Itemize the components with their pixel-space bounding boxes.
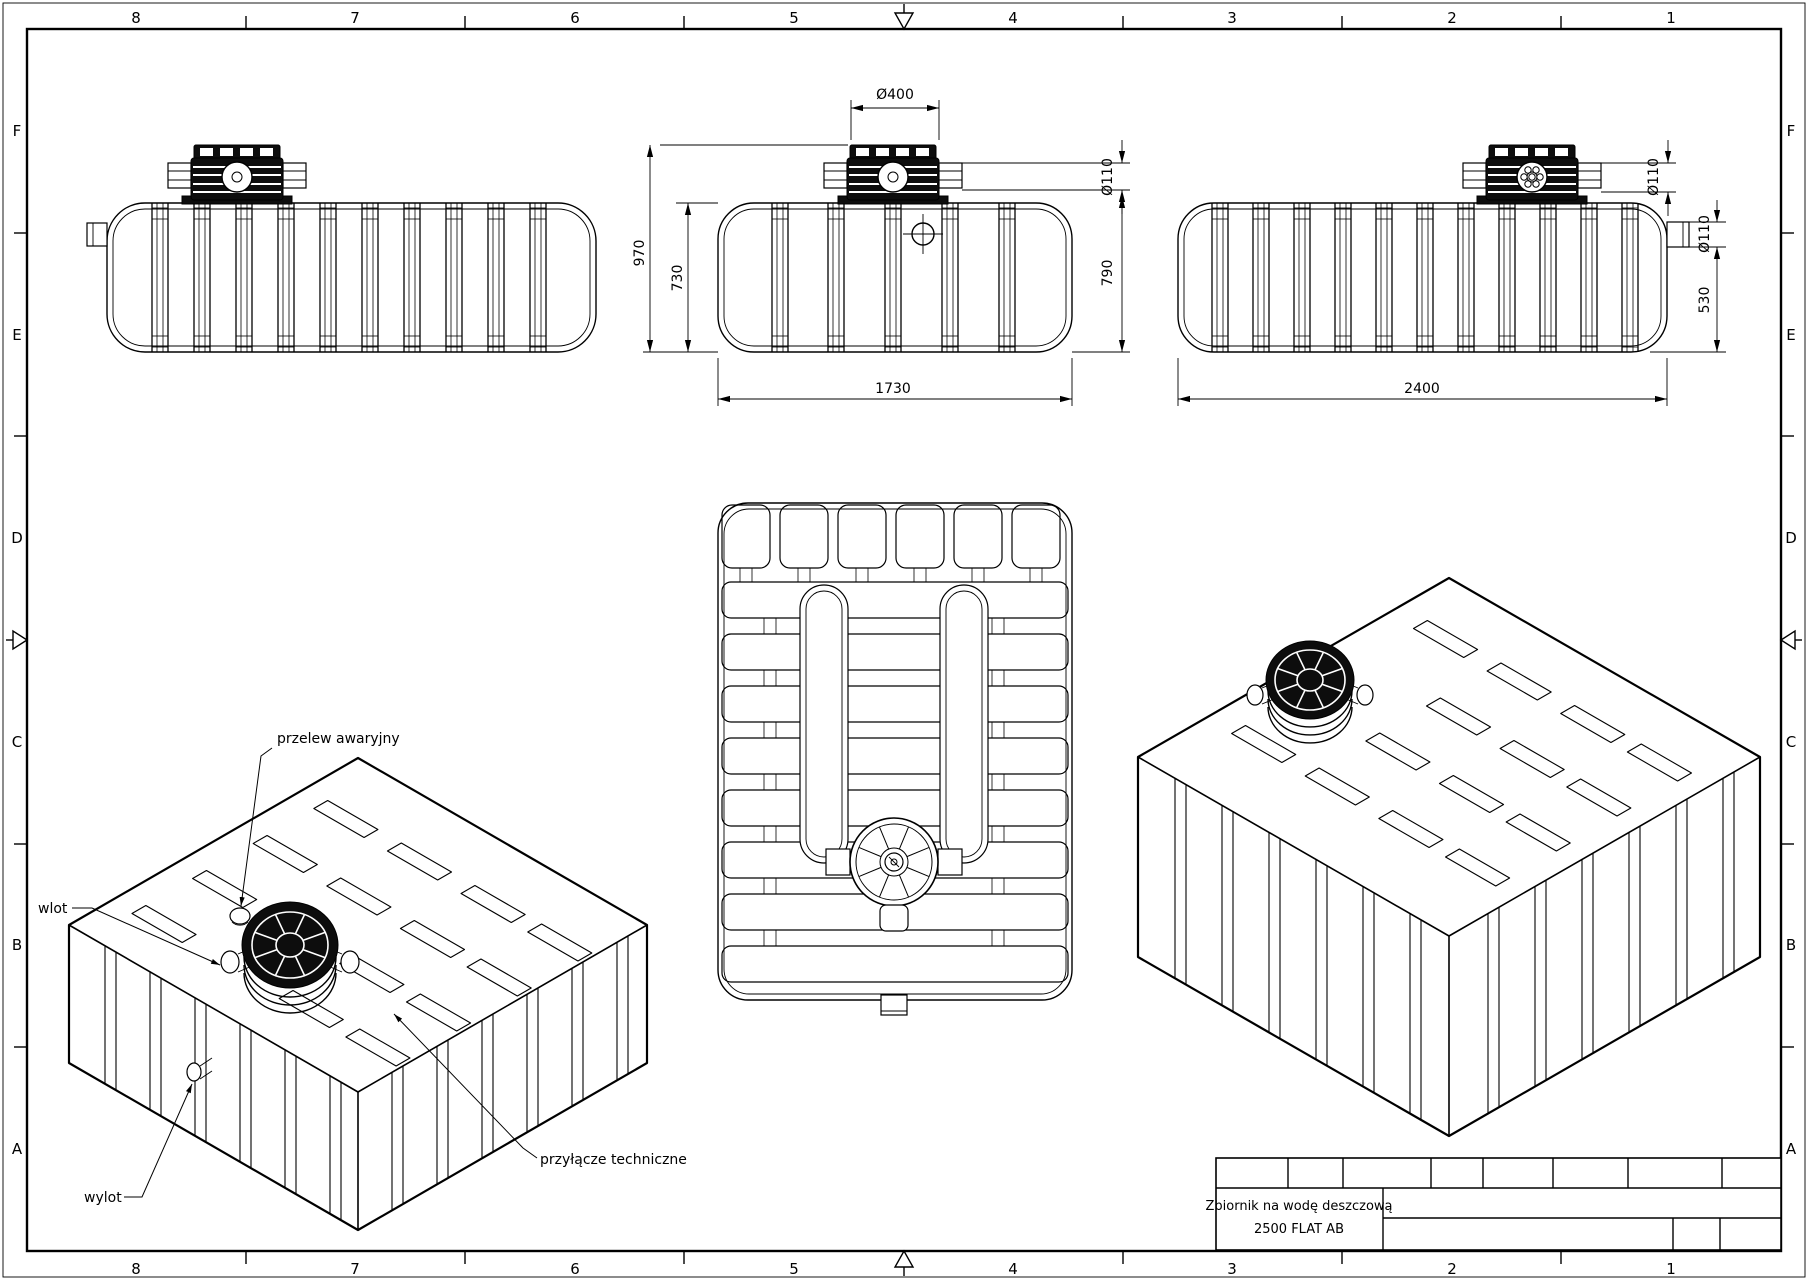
view-isometric-left: przelew awaryjny wlot wylot przyłącze te… [38,731,687,1230]
dim-front: Ø400 Ø110 970 730 790 1730 [632,87,1130,406]
zone-col-bot-1: 1 [1666,1260,1676,1278]
zone-col-bot-7: 7 [350,1260,360,1278]
dim-height-body-right: 790 [1100,260,1116,287]
dim-side-port: Ø110 [1697,215,1713,253]
zone-col-bot-6: 6 [570,1260,580,1278]
view-side-elevation-right: Ø110 Ø110 530 2400 [1178,140,1726,406]
zone-col-top-6: 6 [570,9,580,27]
zone-row-left-D: D [11,529,23,547]
dim-side-lid-pipe: Ø110 [1646,158,1662,196]
drawing-title-line1: Zbiornik na wodę deszczową [1205,1199,1392,1214]
zone-col-top-1: 1 [1666,9,1676,27]
plan-handle-slot-left [800,585,848,863]
zone-row-left-E: E [12,326,21,344]
zone-col-top-3: 3 [1227,9,1237,27]
dim-front-pipe-diameter: Ø110 [1100,158,1116,196]
dim-lid-diameter: Ø400 [876,87,914,103]
zone-row-right-B: B [1786,936,1796,954]
zone-row-left-F: F [13,122,22,140]
zone-row-right-F: F [1787,122,1796,140]
technical-drawing-canvas: 8 7 6 5 4 3 2 1 8 7 6 5 4 3 2 1 F E D C … [0,0,1808,1280]
plan-inner-stub [880,905,908,931]
zone-row-left-A: A [12,1140,23,1158]
zone-col-top-7: 7 [350,9,360,27]
view-plan [718,503,1072,1015]
dim-height-body-left: 730 [670,265,686,292]
label-outlet: wylot [84,1190,122,1206]
zone-col-bot-8: 8 [131,1260,141,1278]
dim-side: Ø110 Ø110 530 2400 [1178,140,1726,406]
view-isometric-right [1138,578,1760,1136]
title-block: Zbiornik na wodę deszczową 2500 FLAT AB [1205,1158,1781,1250]
dim-length: 2400 [1404,381,1440,397]
view-side-elevation-left [87,145,596,352]
zone-col-top-5: 5 [789,9,799,27]
dim-width: 1730 [875,381,911,397]
zone-col-bot-2: 2 [1447,1260,1457,1278]
zone-col-bot-3: 3 [1227,1260,1237,1278]
zone-col-bot-5: 5 [789,1260,799,1278]
drawing-title-line2: 2500 FLAT AB [1254,1222,1344,1237]
plan-handle-slot-right [940,585,988,863]
zone-col-top-4: 4 [1008,9,1018,27]
zone-row-right-E: E [1786,326,1795,344]
front-port-circle [903,214,943,254]
view-front-elevation: Ø400 Ø110 970 730 790 1730 [632,87,1130,406]
side-port-stub [1667,222,1689,247]
dim-port-height: 530 [1697,287,1713,314]
drawing-sheet: 8 7 6 5 4 3 2 1 8 7 6 5 4 3 2 1 F E D C … [0,0,1808,1280]
zone-row-right-A: A [1786,1140,1797,1158]
zone-row-right-D: D [1785,529,1797,547]
iso1-overflow-stub [230,908,250,925]
plan-bottom-pipe [881,995,907,1015]
zone-row-left-C: C [12,733,22,751]
zone-col-bot-4: 4 [1008,1260,1018,1278]
label-technical: przyłącze techniczne [540,1152,687,1168]
zone-row-left-B: B [12,936,22,954]
label-inlet: wlot [38,901,68,917]
label-overflow: przelew awaryjny [277,731,400,747]
zone-col-top-8: 8 [131,9,141,27]
zone-row-right-C: C [1786,733,1796,751]
zone-col-top-2: 2 [1447,9,1457,27]
dim-height-total: 970 [632,240,648,267]
